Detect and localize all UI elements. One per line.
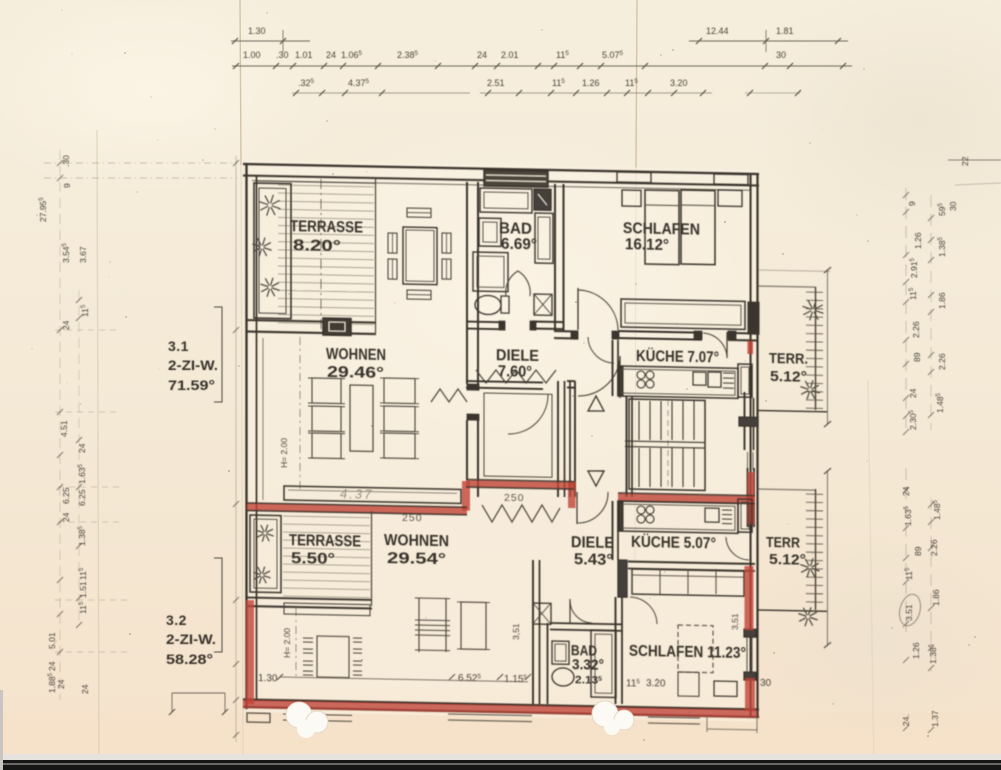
svg-text:9: 9	[907, 201, 917, 206]
svg-text:5.12°: 5.12°	[770, 368, 807, 386]
svg-text:BAD: BAD	[499, 220, 532, 238]
svg-text:250: 250	[504, 492, 525, 504]
svg-text:1.26: 1.26	[582, 78, 600, 88]
svg-text:H= 2.00: H= 2.00	[279, 438, 289, 468]
svg-text:5.12°: 5.12°	[769, 551, 806, 569]
svg-text:6.69°: 6.69°	[501, 236, 537, 254]
svg-text:WOHNEN: WOHNEN	[326, 346, 386, 364]
svg-text:24: 24	[77, 443, 87, 453]
svg-text:3,51: 3,51	[511, 623, 521, 640]
svg-text:30: 30	[760, 678, 772, 689]
svg-text:1.51: 1.51	[78, 581, 88, 598]
svg-text:WOHNEN: WOHNEN	[384, 532, 449, 550]
svg-text:24: 24	[80, 684, 90, 694]
svg-text:12.44: 12.44	[706, 26, 729, 36]
svg-text:24: 24	[61, 320, 71, 330]
svg-text:3.2: 3.2	[166, 612, 187, 628]
svg-text:2-ZI-W.: 2-ZI-W.	[168, 357, 218, 373]
svg-text:3.1: 3.1	[168, 338, 189, 354]
svg-text:24: 24	[61, 512, 71, 522]
svg-text:TERR: TERR	[766, 534, 800, 552]
svg-text:1.37: 1.37	[930, 710, 940, 727]
svg-text:4.51: 4.51	[59, 420, 69, 437]
svg-text:2-ZI-W.: 2-ZI-W.	[166, 631, 216, 647]
svg-text:2.51: 2.51	[487, 78, 505, 88]
svg-text:1.00: 1.00	[243, 50, 261, 60]
svg-text:8.20°: 8.20°	[293, 237, 341, 255]
svg-text:1.86: 1.86	[931, 589, 941, 606]
svg-text:TERRASSE: TERRASSE	[290, 218, 363, 236]
svg-text:9: 9	[62, 183, 72, 188]
svg-text:24: 24	[326, 50, 336, 60]
svg-text:3.20: 3.20	[646, 678, 666, 689]
svg-text:2.26: 2.26	[937, 353, 947, 370]
svg-text:24: 24	[901, 486, 911, 496]
svg-text:KÜCHE 5.07°: KÜCHE 5.07°	[631, 534, 716, 553]
svg-text:89: 89	[913, 546, 923, 556]
svg-text:24: 24	[56, 679, 66, 689]
svg-text:58.28°: 58.28°	[166, 651, 213, 667]
svg-text:TERRASSE: TERRASSE	[289, 532, 361, 550]
svg-text:DIELE: DIELE	[571, 534, 614, 552]
svg-text:24: 24	[47, 661, 57, 671]
svg-text:3.51: 3.51	[904, 604, 914, 621]
svg-text:24: 24	[477, 50, 487, 60]
svg-text:6.25: 6.25	[61, 487, 71, 504]
svg-text:5.01: 5.01	[47, 632, 57, 649]
svg-text:24: 24	[908, 388, 918, 398]
svg-text:30: 30	[776, 50, 786, 60]
svg-text:5.43°: 5.43°	[574, 551, 613, 569]
svg-text:5.50°: 5.50°	[291, 550, 335, 568]
svg-text:6.25: 6.25	[77, 489, 87, 506]
svg-text:71.59°: 71.59°	[168, 377, 215, 393]
svg-text:1.30: 1.30	[248, 26, 266, 36]
svg-text:3.67: 3.67	[78, 246, 88, 263]
svg-text:KÜCHE 7.07°: KÜCHE 7.07°	[636, 348, 719, 367]
svg-text:.30: .30	[276, 50, 289, 60]
svg-text:TERR.: TERR.	[769, 350, 808, 368]
svg-text:1.26: 1.26	[913, 232, 923, 249]
svg-text:30: 30	[948, 201, 958, 211]
svg-text:2.26: 2.26	[911, 321, 921, 338]
svg-text:29.54°: 29.54°	[387, 550, 446, 568]
svg-text:1.30: 1.30	[258, 673, 278, 684]
svg-text:3.32°: 3.32°	[572, 657, 604, 674]
svg-text:1.26: 1.26	[911, 642, 921, 659]
svg-text:3,51: 3,51	[730, 613, 740, 630]
svg-text:22: 22	[960, 156, 970, 166]
svg-text:.30: .30	[61, 155, 71, 167]
svg-text:16.12°: 16.12°	[625, 236, 669, 254]
svg-text:H= 2.00: H= 2.00	[282, 628, 292, 658]
svg-text:29.46°: 29.46°	[327, 364, 384, 382]
svg-text:1.81: 1.81	[776, 26, 794, 36]
svg-text:89: 89	[912, 352, 922, 362]
svg-text:SCHLAFEN 11.23°: SCHLAFEN 11.23°	[629, 643, 746, 662]
svg-text:3.20: 3.20	[670, 78, 688, 88]
svg-text:2.26: 2.26	[929, 539, 939, 556]
svg-text:1.86: 1.86	[937, 292, 947, 309]
svg-text:2.01: 2.01	[501, 50, 519, 60]
svg-text:1.01: 1.01	[295, 50, 313, 60]
svg-text:24.: 24.	[901, 714, 911, 726]
svg-text:4.37: 4.37	[340, 486, 373, 502]
